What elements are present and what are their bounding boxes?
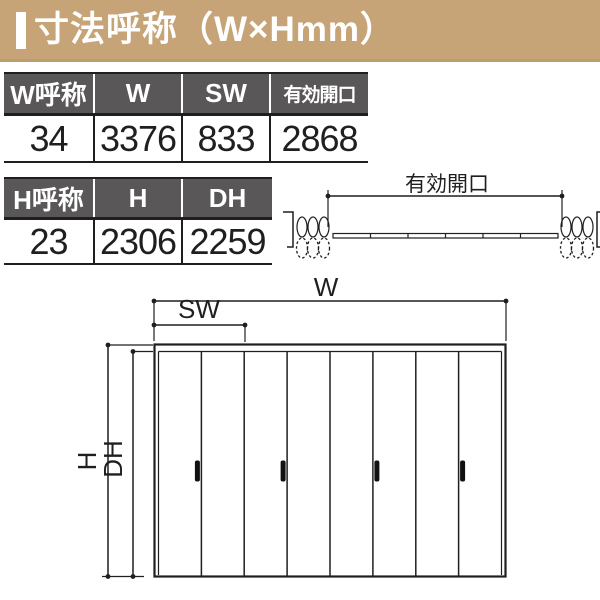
plan-view: 有効開口 [283, 173, 600, 258]
dimension-dot [152, 323, 157, 328]
door-handle [281, 461, 286, 482]
front-view: W SW H DH [72, 272, 508, 579]
technical-drawing: 有効開口 [0, 0, 600, 600]
door-handle [460, 461, 465, 482]
dimension-dot [131, 574, 136, 579]
door-handle [195, 461, 200, 482]
spec-page: 寸法呼称（W×Hmm） W呼称 W SW 有効開口 34 3376 833 28… [0, 0, 600, 600]
front-door-height-label: DH [98, 440, 128, 478]
front-width-label: W [314, 272, 339, 302]
door-handle [374, 461, 379, 482]
folded-panels-right [561, 217, 594, 258]
plan-opening-label: 有効開口 [405, 173, 489, 196]
wall-jamb-left [283, 212, 293, 247]
front-slide-width-label: SW [178, 294, 220, 324]
folded-panels-left [297, 217, 330, 258]
